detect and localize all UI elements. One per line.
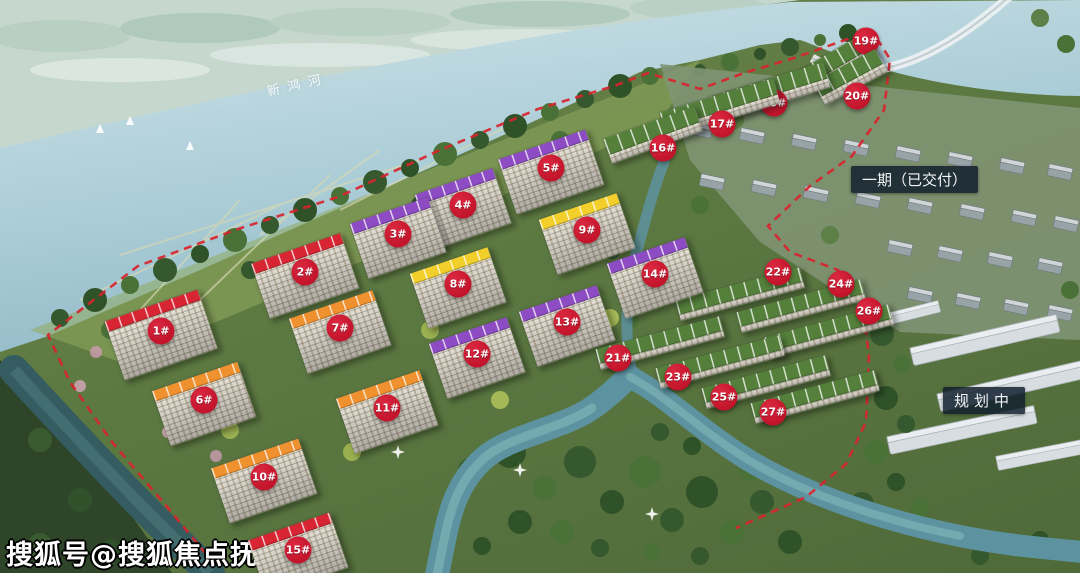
building-number-label: 1# <box>153 326 170 337</box>
building-number-label: 7# <box>332 323 349 334</box>
building-number-label: 14# <box>643 269 668 280</box>
building-number-badge: 1# <box>148 318 175 345</box>
building-number-badge: 26# <box>856 298 883 325</box>
planning-label: 规划中 <box>943 387 1025 414</box>
building-number-badge: 14# <box>642 261 669 288</box>
building-number-label: 16# <box>651 143 676 154</box>
building-number-label: 6# <box>196 395 213 406</box>
building-number-badge: 13# <box>554 309 581 336</box>
building-number-label: 11# <box>375 403 400 414</box>
building-number-badge: 4# <box>450 192 477 219</box>
building-number-label: 17# <box>710 119 735 130</box>
building-number-label: 25# <box>712 392 737 403</box>
building-number-label: 21# <box>606 353 631 364</box>
building-number-badge: 7# <box>327 315 354 342</box>
building-number-badge: 8# <box>445 271 472 298</box>
building-number-badge: 25# <box>711 384 738 411</box>
building-number-badge: 22# <box>765 259 792 286</box>
building-number-label: 19# <box>854 36 879 47</box>
building-number-badge: 27# <box>760 399 787 426</box>
building-number-badge: 2# <box>292 259 319 286</box>
building-number-label: 24# <box>829 279 854 290</box>
building-number-badge: 5# <box>538 155 565 182</box>
building-number-badge: 9# <box>574 217 601 244</box>
building-number-label: 27# <box>761 407 786 418</box>
building-number-badge: 24# <box>828 271 855 298</box>
building-number-label: 5# <box>543 163 560 174</box>
building-number-badge: 20# <box>844 83 871 110</box>
building-number-label: 26# <box>857 306 882 317</box>
building-number-label: 2# <box>297 267 314 278</box>
building-number-badge: 21# <box>605 345 632 372</box>
phase1-label: 一期（已交付） <box>851 166 978 193</box>
building-number-badge: 16# <box>650 135 677 162</box>
building-number-badge: 10# <box>251 464 278 491</box>
building-number-label: 3# <box>390 229 407 240</box>
building-number-label: 4# <box>455 200 472 211</box>
markers-layer: 19# 20# 18# 17# <box>0 0 1080 573</box>
building-number-label: 15# <box>286 545 311 556</box>
building-number-badge: 3# <box>385 221 412 248</box>
building-number-badge: 11# <box>374 395 401 422</box>
building-number-label: 22# <box>766 267 791 278</box>
building-number-label: 9# <box>579 225 596 236</box>
building-number-badge: 12# <box>464 341 491 368</box>
building-number-badge: 23# <box>665 364 692 391</box>
building-number-label: 20# <box>845 91 870 102</box>
building-number-label: 13# <box>555 317 580 328</box>
building-number-label: 12# <box>465 349 490 360</box>
building-number-label: 23# <box>666 372 691 383</box>
building-number-badge: 17# <box>709 111 736 138</box>
building-number-label: 10# <box>252 472 277 483</box>
site-plan-image: 19# 20# 18# 17# <box>0 0 1080 573</box>
building-number-badge: 15# <box>285 537 312 564</box>
building-number-badge: 6# <box>191 387 218 414</box>
building-number-label: 8# <box>450 279 467 290</box>
